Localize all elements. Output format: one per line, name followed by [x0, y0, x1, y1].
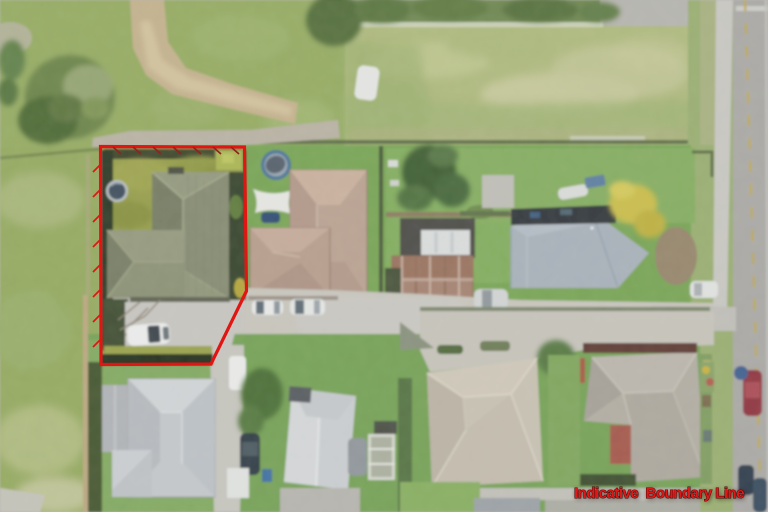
svg-text:Indicative Boundary Line: Indicative Boundary Line [574, 485, 744, 502]
